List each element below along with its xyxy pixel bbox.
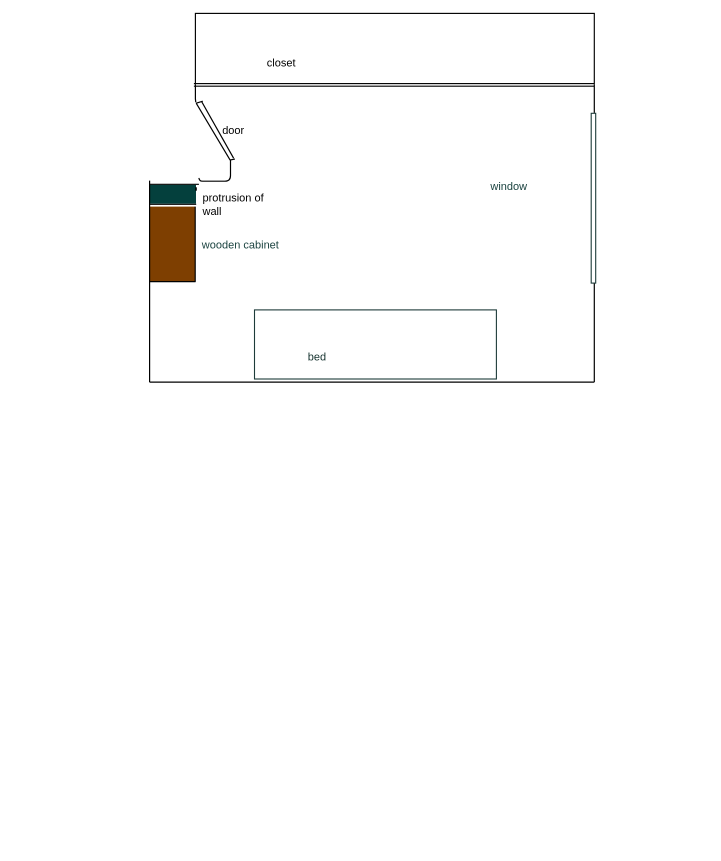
svg-text:wall: wall [202, 206, 222, 218]
svg-text:door: door [222, 125, 244, 137]
svg-text:window: window [489, 181, 527, 193]
svg-text:protrusion of: protrusion of [203, 192, 265, 204]
svg-text:wooden cabinet: wooden cabinet [201, 240, 279, 252]
svg-text:bed: bed [308, 352, 326, 364]
svg-text:closet: closet [267, 58, 296, 70]
